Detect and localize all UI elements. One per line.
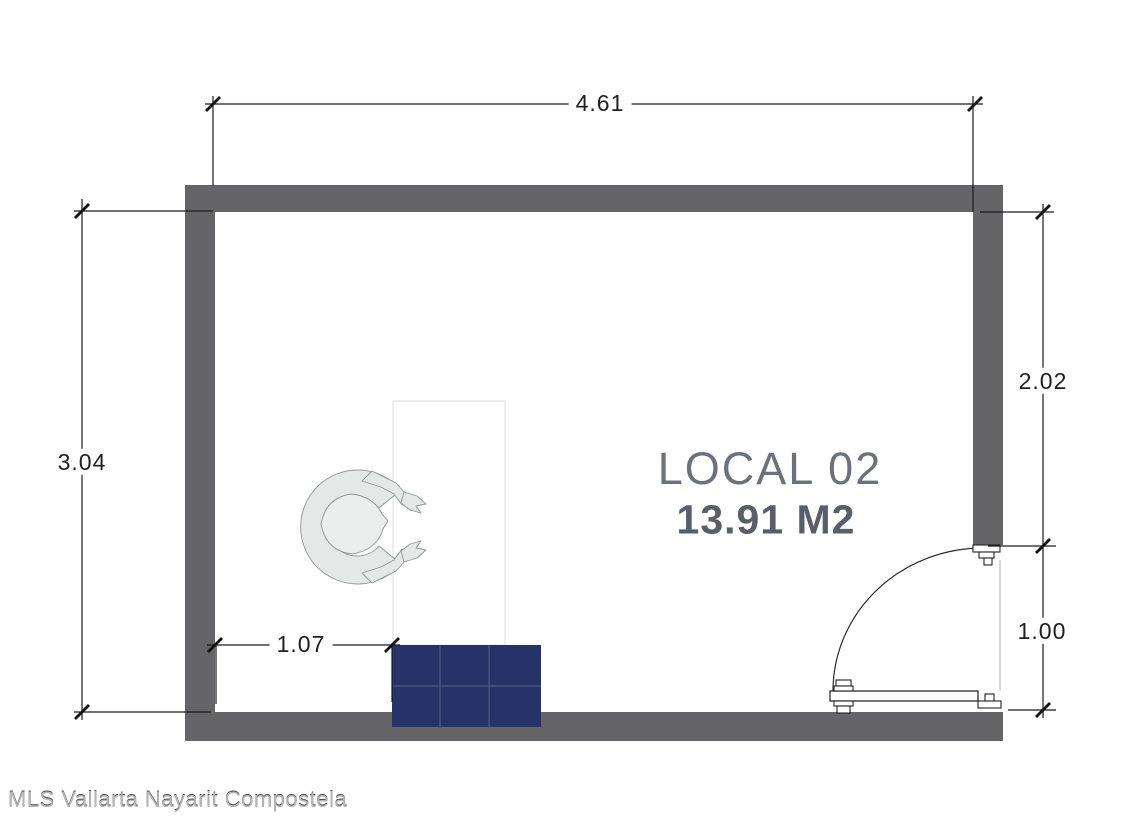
reception-counter — [392, 645, 541, 727]
counter-outline — [393, 401, 505, 645]
door-pivot-leaf-right — [978, 694, 1001, 708]
door-pivot-top — [973, 545, 1000, 565]
right-upper-dimension-label: 2.02 — [1012, 368, 1075, 394]
door-width-dimension-label: 1.00 — [1011, 618, 1074, 644]
wall-right-upper — [973, 185, 1003, 545]
room-area-label: 13.91 M2 — [677, 497, 856, 544]
door-leaf — [830, 691, 978, 701]
left-height-dimension-label: 3.04 — [51, 449, 114, 475]
wall-top — [185, 185, 1003, 212]
door-swing-arc — [833, 548, 983, 691]
door — [830, 545, 1001, 713]
watermark-text: MLS Vallarta Nayarit Compostela — [8, 787, 347, 813]
counter-offset-dimension-label: 1.07 — [270, 631, 333, 657]
top-width-dimension-label: 4.61 — [569, 90, 632, 116]
room-name-label: LOCAL 02 — [658, 443, 882, 495]
wall-bottom — [185, 712, 1003, 741]
floor-plan-page: 4.61 3.04 2.02 1.00 1.07 LOCAL 02 13.91 … — [0, 0, 1130, 840]
floor-plan-drawing — [0, 0, 1130, 840]
wall-left — [185, 185, 215, 741]
